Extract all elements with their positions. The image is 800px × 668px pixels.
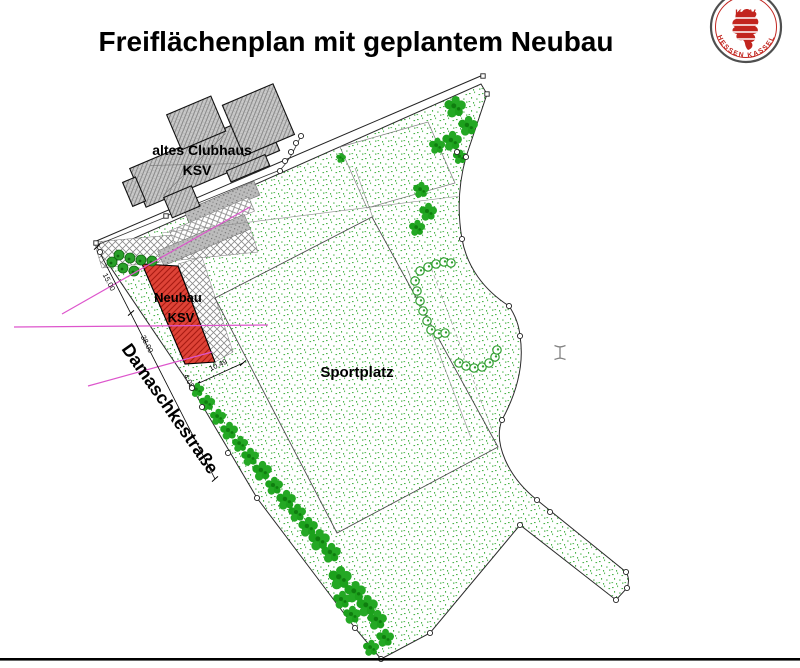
ksv-crest-logo: KSV HESSEN KASSEL xyxy=(711,0,781,62)
new-building-label-line2: KSV xyxy=(168,310,195,325)
sports-field-label: Sportplatz xyxy=(320,364,393,381)
new-building-label-line1: Neubau xyxy=(154,290,202,305)
screenshot-root: Freiflächenplan mit geplantem Neubau KSV… xyxy=(0,0,800,668)
old-clubhouse-label-line2: KSV xyxy=(183,162,212,178)
site-plan-drawing: Freiflächenplan mit geplantem Neubau KSV… xyxy=(0,0,800,668)
old-clubhouse-label-line1: altes Clubhaus xyxy=(152,142,252,158)
dim-15: 15.00 xyxy=(101,272,118,293)
text-cursor xyxy=(555,346,566,360)
page-title: Freiflächenplan mit geplantem Neubau xyxy=(99,26,614,57)
bottom-border-line xyxy=(0,658,800,661)
